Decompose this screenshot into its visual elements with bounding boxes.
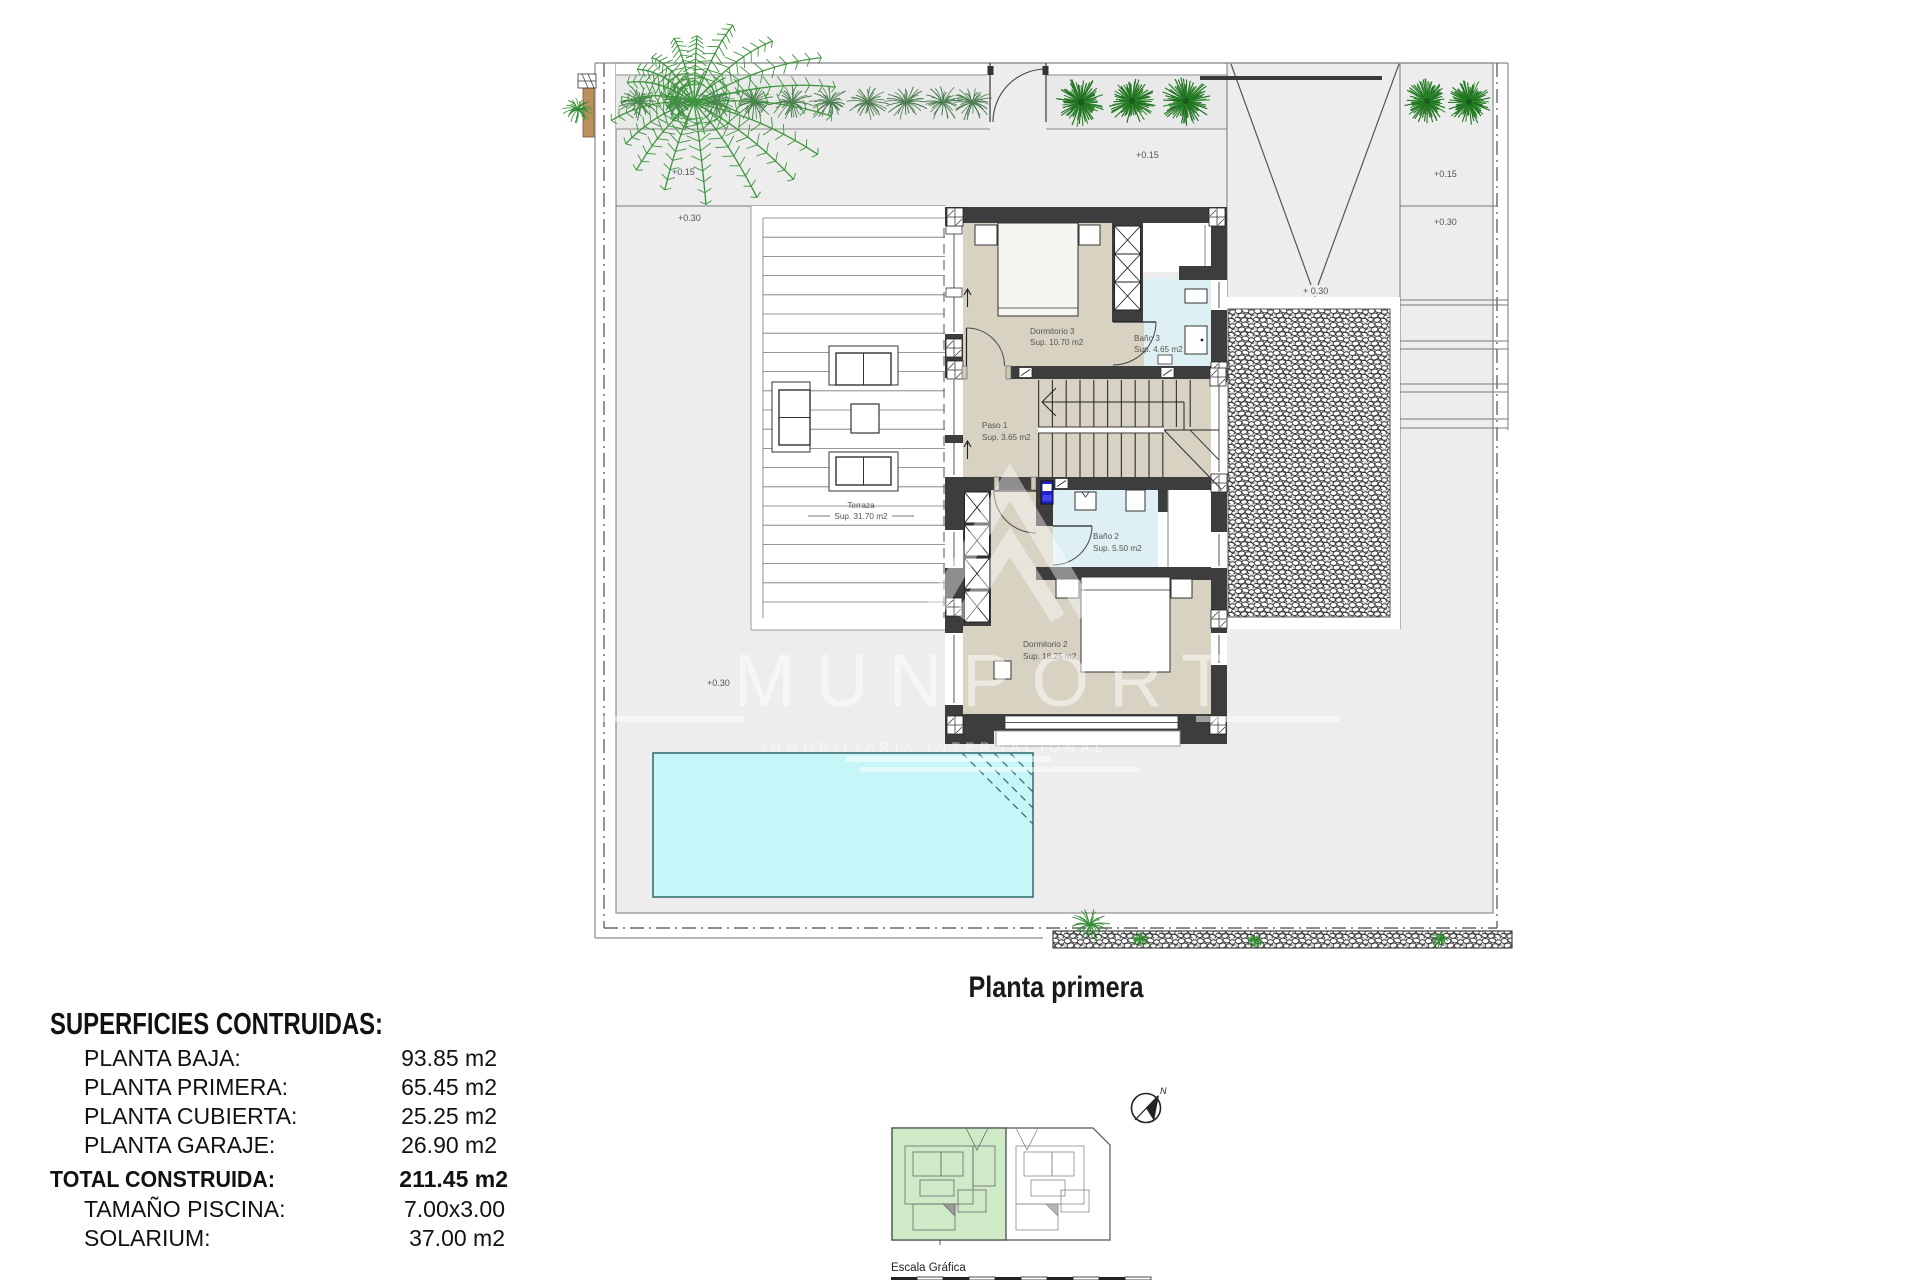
svg-text:211.45 m2: 211.45 m2 xyxy=(399,1166,508,1192)
svg-text:Sup. 5.50 m2: Sup. 5.50 m2 xyxy=(1093,544,1142,553)
svg-text:93.85 m2: 93.85 m2 xyxy=(401,1045,497,1071)
svg-text:Dormitorio 3: Dormitorio 3 xyxy=(1030,327,1075,336)
svg-text:TAMAÑO PISCINA:: TAMAÑO PISCINA: xyxy=(84,1196,286,1222)
svg-text:7.00x3.00: 7.00x3.00 xyxy=(404,1196,505,1222)
svg-text:37.00 m2: 37.00 m2 xyxy=(409,1225,505,1251)
svg-text:SUPERFICIES CONTRUIDAS:: SUPERFICIES CONTRUIDAS: xyxy=(50,1006,383,1041)
svg-text:+ 0.30: + 0.30 xyxy=(1303,286,1328,296)
svg-text:Baño 2: Baño 2 xyxy=(1093,532,1119,541)
svg-text:Sup. 10.70 m2: Sup. 10.70 m2 xyxy=(1030,338,1084,347)
svg-text:INMOBILIARIA INTERNACIONAL: INMOBILIARIA INTERNACIONAL xyxy=(762,740,1108,755)
svg-text:Sup. 31.70 m2: Sup. 31.70 m2 xyxy=(834,512,888,521)
svg-text:Planta primera: Planta primera xyxy=(969,971,1144,1004)
svg-text:65.45 m2: 65.45 m2 xyxy=(401,1074,497,1100)
svg-text:Baño 3: Baño 3 xyxy=(1134,334,1160,343)
svg-text:+0.30: +0.30 xyxy=(707,678,730,688)
svg-text:Escala Gráfica: Escala Gráfica xyxy=(891,1262,966,1274)
svg-text:TOTAL CONSTRUIDA:: TOTAL CONSTRUIDA: xyxy=(50,1166,275,1192)
svg-text:N: N xyxy=(1160,1086,1167,1096)
svg-text:PLANTA PRIMERA:: PLANTA PRIMERA: xyxy=(84,1074,288,1100)
svg-text:Terraza: Terraza xyxy=(847,501,875,510)
svg-text:SOLARIUM:: SOLARIUM: xyxy=(84,1225,211,1251)
svg-text:PLANTA CUBIERTA:: PLANTA CUBIERTA: xyxy=(84,1103,297,1129)
svg-text:+0.15: +0.15 xyxy=(1136,150,1159,160)
svg-text:Paso 1: Paso 1 xyxy=(982,421,1008,430)
svg-text:PLANTA BAJA:: PLANTA BAJA: xyxy=(84,1045,241,1071)
svg-text:Sup. 4.65 m2: Sup. 4.65 m2 xyxy=(1134,345,1183,354)
svg-text:+0.30: +0.30 xyxy=(1434,217,1457,227)
svg-text:+0.15: +0.15 xyxy=(672,167,695,177)
svg-text:Sup. 3.65 m2: Sup. 3.65 m2 xyxy=(982,433,1031,442)
svg-text:26.90 m2: 26.90 m2 xyxy=(401,1132,497,1158)
svg-text:MUNPORT: MUNPORT xyxy=(734,639,1247,722)
svg-text:PLANTA GARAJE:: PLANTA GARAJE: xyxy=(84,1132,275,1158)
svg-text:+0.15: +0.15 xyxy=(1434,169,1457,179)
svg-text:25.25 m2: 25.25 m2 xyxy=(401,1103,497,1129)
svg-text:+0.30: +0.30 xyxy=(678,213,701,223)
